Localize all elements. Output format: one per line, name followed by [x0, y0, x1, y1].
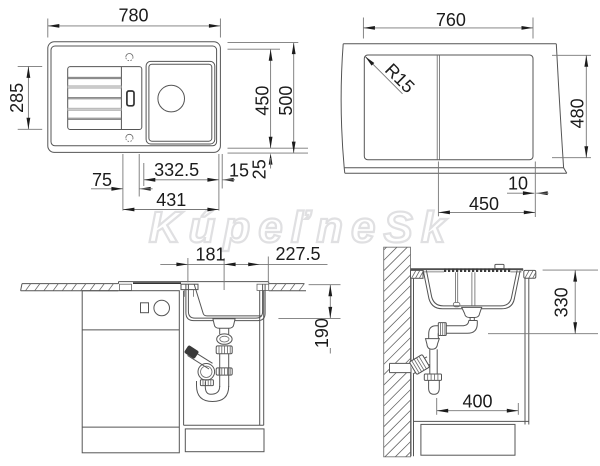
svg-text:190: 190 [312, 318, 332, 348]
svg-text:332.5: 332.5 [154, 160, 199, 180]
svg-text:450: 450 [469, 194, 499, 214]
svg-text:330: 330 [552, 287, 572, 317]
svg-text:780: 780 [118, 6, 148, 26]
svg-text:480: 480 [568, 98, 588, 128]
svg-text:450: 450 [253, 86, 273, 116]
svg-text:431: 431 [156, 190, 186, 210]
svg-text:400: 400 [462, 392, 492, 412]
svg-text:10: 10 [508, 173, 528, 193]
svg-text:760: 760 [436, 10, 466, 30]
svg-text:227.5: 227.5 [275, 244, 320, 264]
svg-text:15: 15 [229, 160, 249, 180]
svg-text:75: 75 [92, 170, 112, 190]
svg-text:285: 285 [7, 83, 27, 113]
svg-text:25: 25 [250, 159, 270, 179]
svg-text:500: 500 [276, 86, 296, 116]
svg-text:181: 181 [195, 245, 225, 265]
